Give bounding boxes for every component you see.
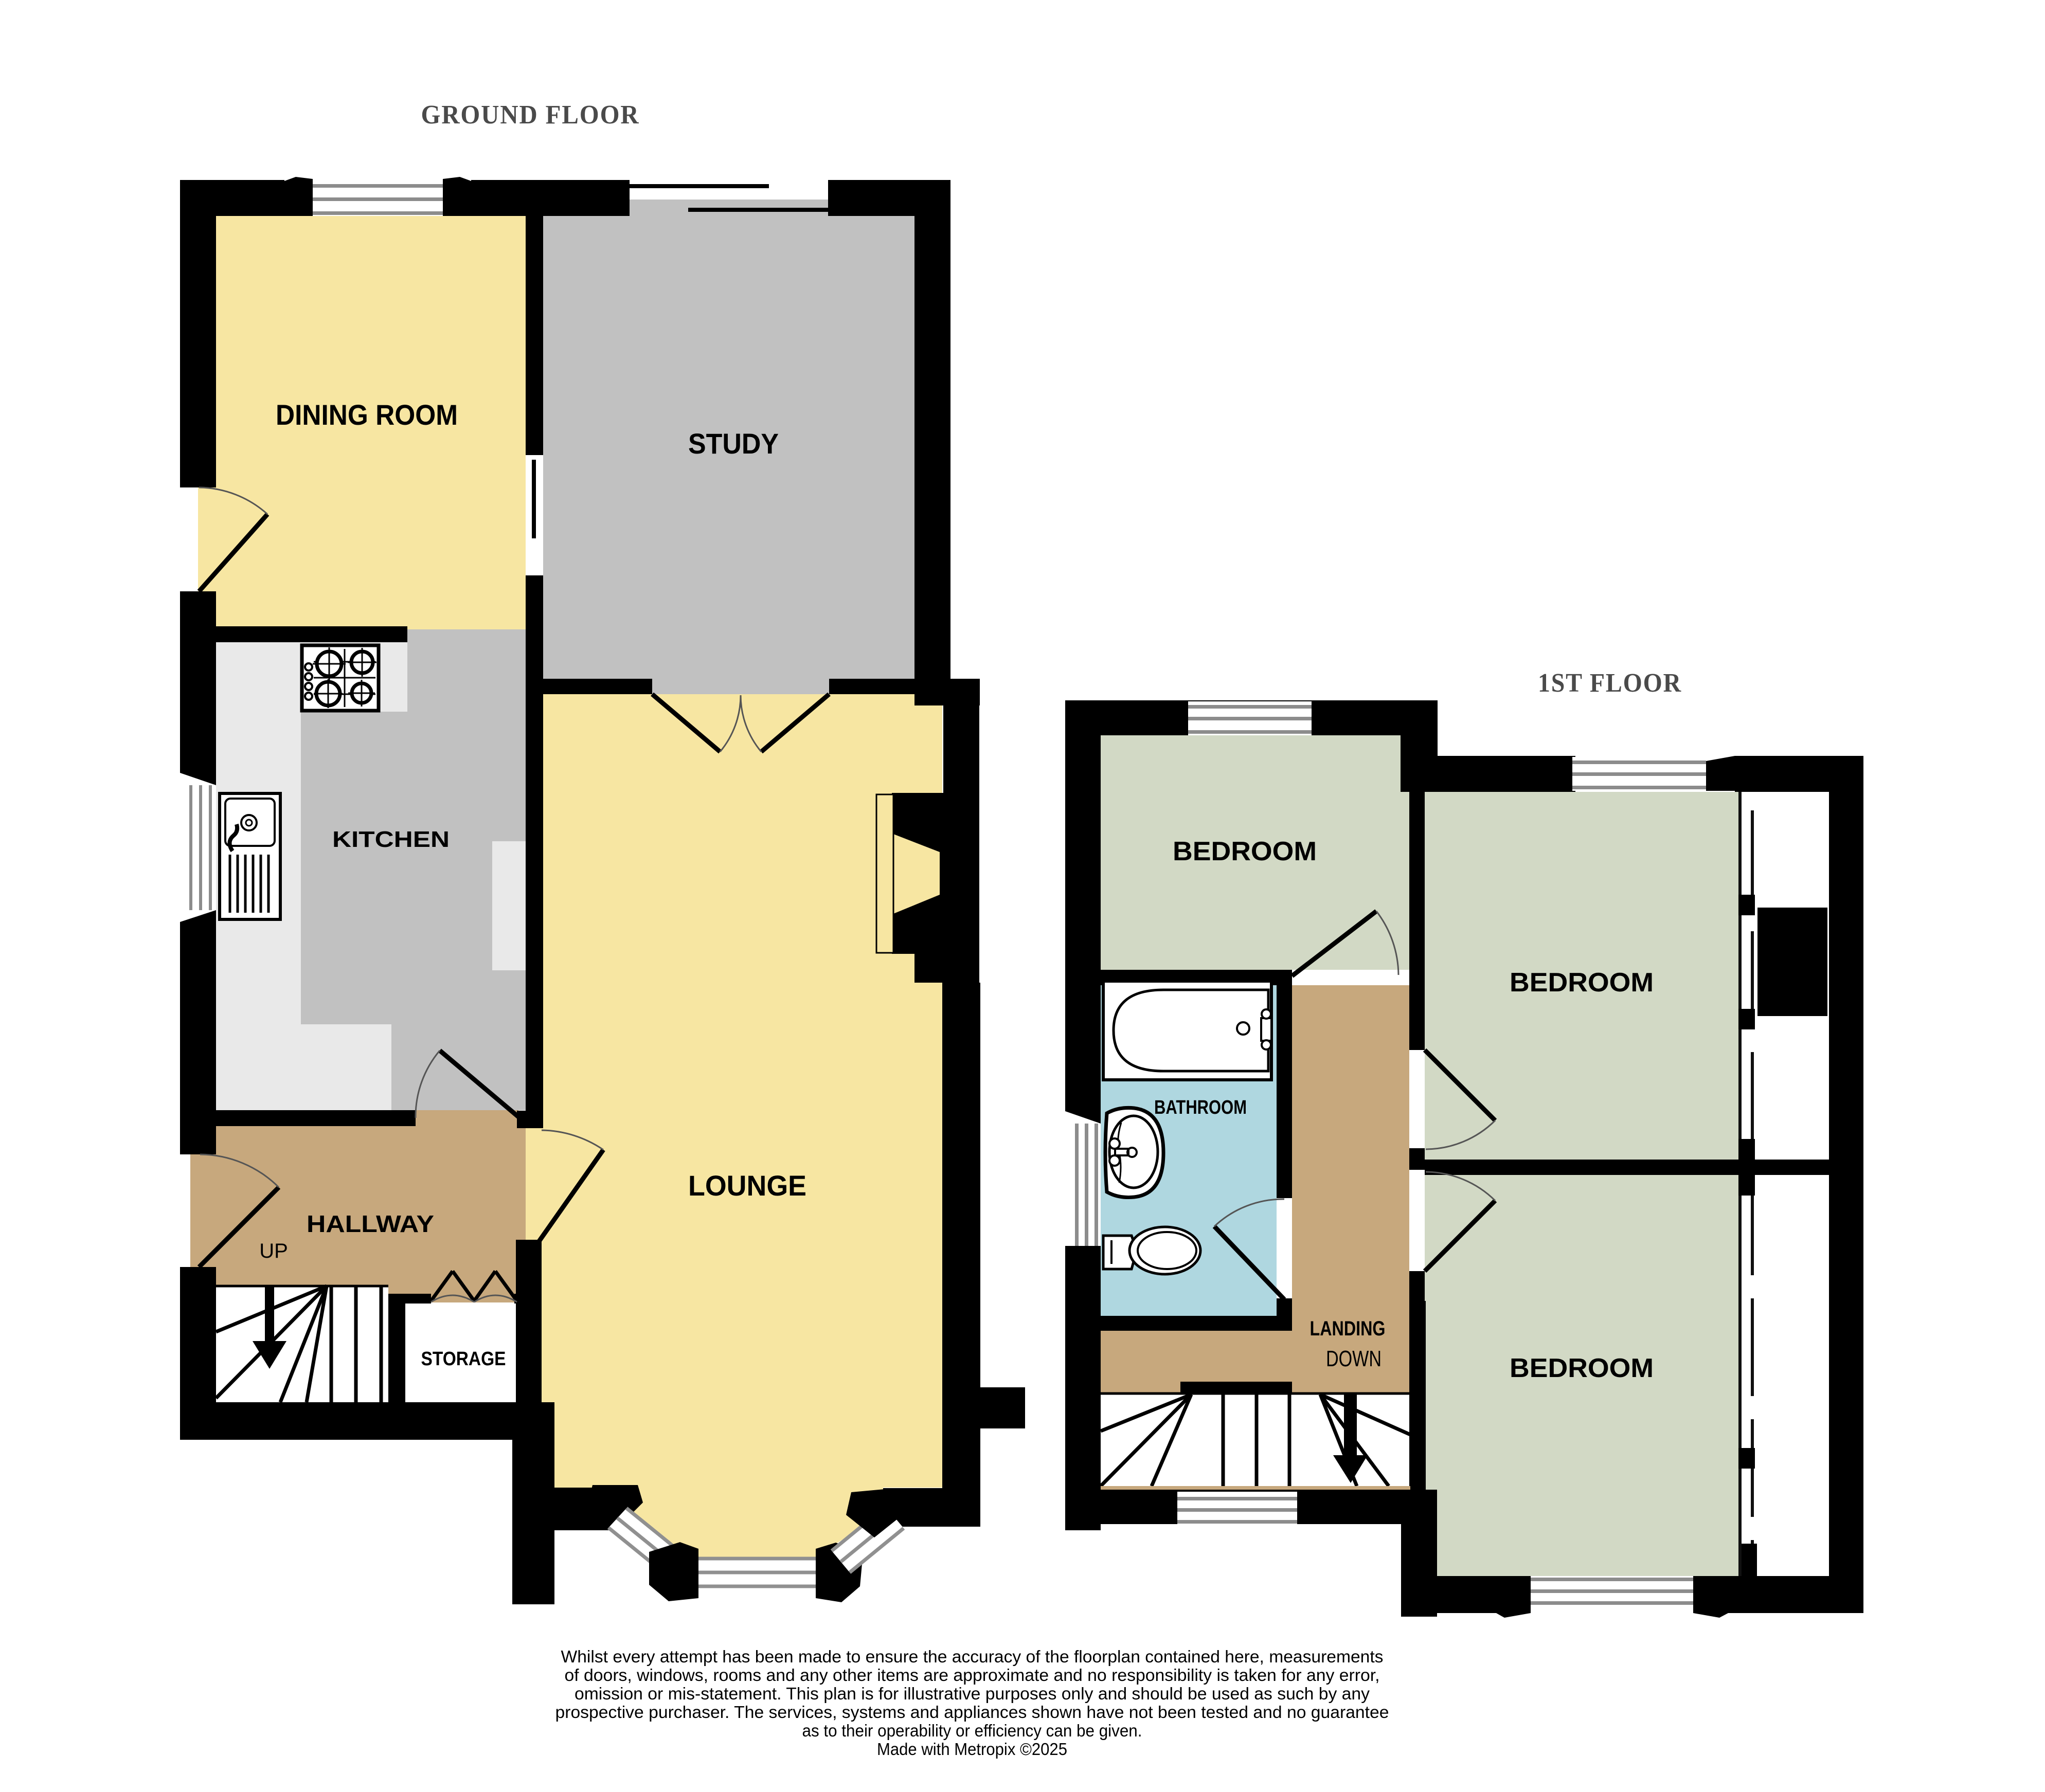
svg-text:Made with Metropix ©2025: Made with Metropix ©2025: [877, 1740, 1067, 1759]
svg-text:BEDROOM: BEDROOM: [1510, 1353, 1654, 1383]
svg-text:Whilst every attempt has been: Whilst every attempt has been made to en…: [561, 1647, 1384, 1666]
svg-text:BEDROOM: BEDROOM: [1510, 968, 1654, 998]
svg-text:STORAGE: STORAGE: [421, 1348, 506, 1370]
svg-text:BEDROOM: BEDROOM: [1173, 837, 1317, 866]
svg-text:1ST FLOOR: 1ST FLOOR: [1538, 668, 1682, 698]
svg-text:of doors, windows, rooms and a: of doors, windows, rooms and any other i…: [565, 1666, 1380, 1685]
svg-text:omission or mis-statement. Thi: omission or mis-statement. This plan is …: [575, 1684, 1370, 1703]
svg-text:LANDING: LANDING: [1310, 1317, 1386, 1340]
svg-text:LOUNGE: LOUNGE: [688, 1169, 806, 1202]
svg-text:KITCHEN: KITCHEN: [332, 827, 450, 852]
svg-text:HALLWAY: HALLWAY: [307, 1210, 434, 1237]
svg-text:prospective purchaser. The ser: prospective purchaser. The services, sys…: [555, 1703, 1389, 1722]
svg-text:as to their operability or eff: as to their operability or efficiency ca…: [802, 1721, 1142, 1740]
svg-text:STUDY: STUDY: [688, 427, 779, 460]
svg-text:DOWN: DOWN: [1326, 1346, 1382, 1371]
svg-text:UP: UP: [259, 1240, 288, 1262]
svg-text:DINING ROOM: DINING ROOM: [276, 399, 458, 431]
svg-text:BATHROOM: BATHROOM: [1154, 1097, 1247, 1118]
svg-text:GROUND FLOOR: GROUND FLOOR: [421, 100, 640, 130]
